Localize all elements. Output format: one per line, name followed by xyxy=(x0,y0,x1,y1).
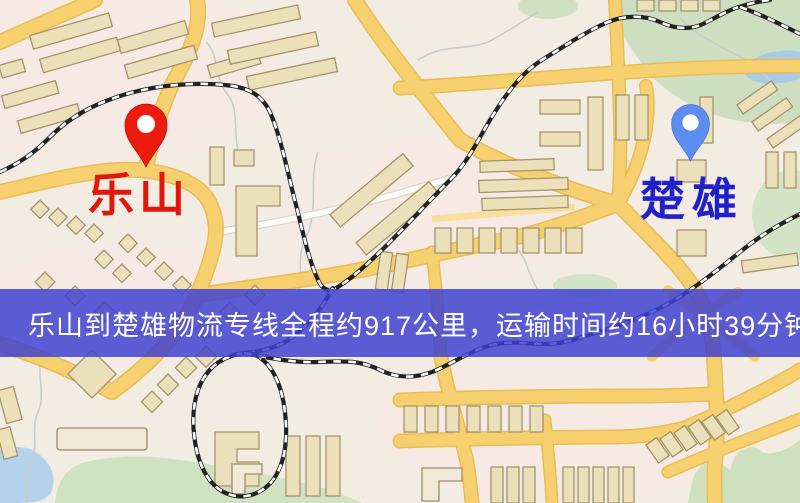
origin-pin-icon[interactable] xyxy=(121,100,171,168)
destination-pin-icon[interactable] xyxy=(668,100,713,163)
logistics-route-map: 乐山 楚雄 乐山到楚雄物流专线全程约917公里，运输时间约16小时39分钟. xyxy=(0,0,800,503)
route-info-banner: 乐山到楚雄物流专线全程约917公里，运输时间约16小时39分钟. xyxy=(0,289,800,357)
route-info-text: 乐山到楚雄物流专线全程约917公里，运输时间约16小时39分钟. xyxy=(28,304,800,343)
origin-label: 乐山 xyxy=(88,172,190,218)
map-canvas[interactable] xyxy=(0,0,800,503)
destination-label: 楚雄 xyxy=(640,177,744,222)
